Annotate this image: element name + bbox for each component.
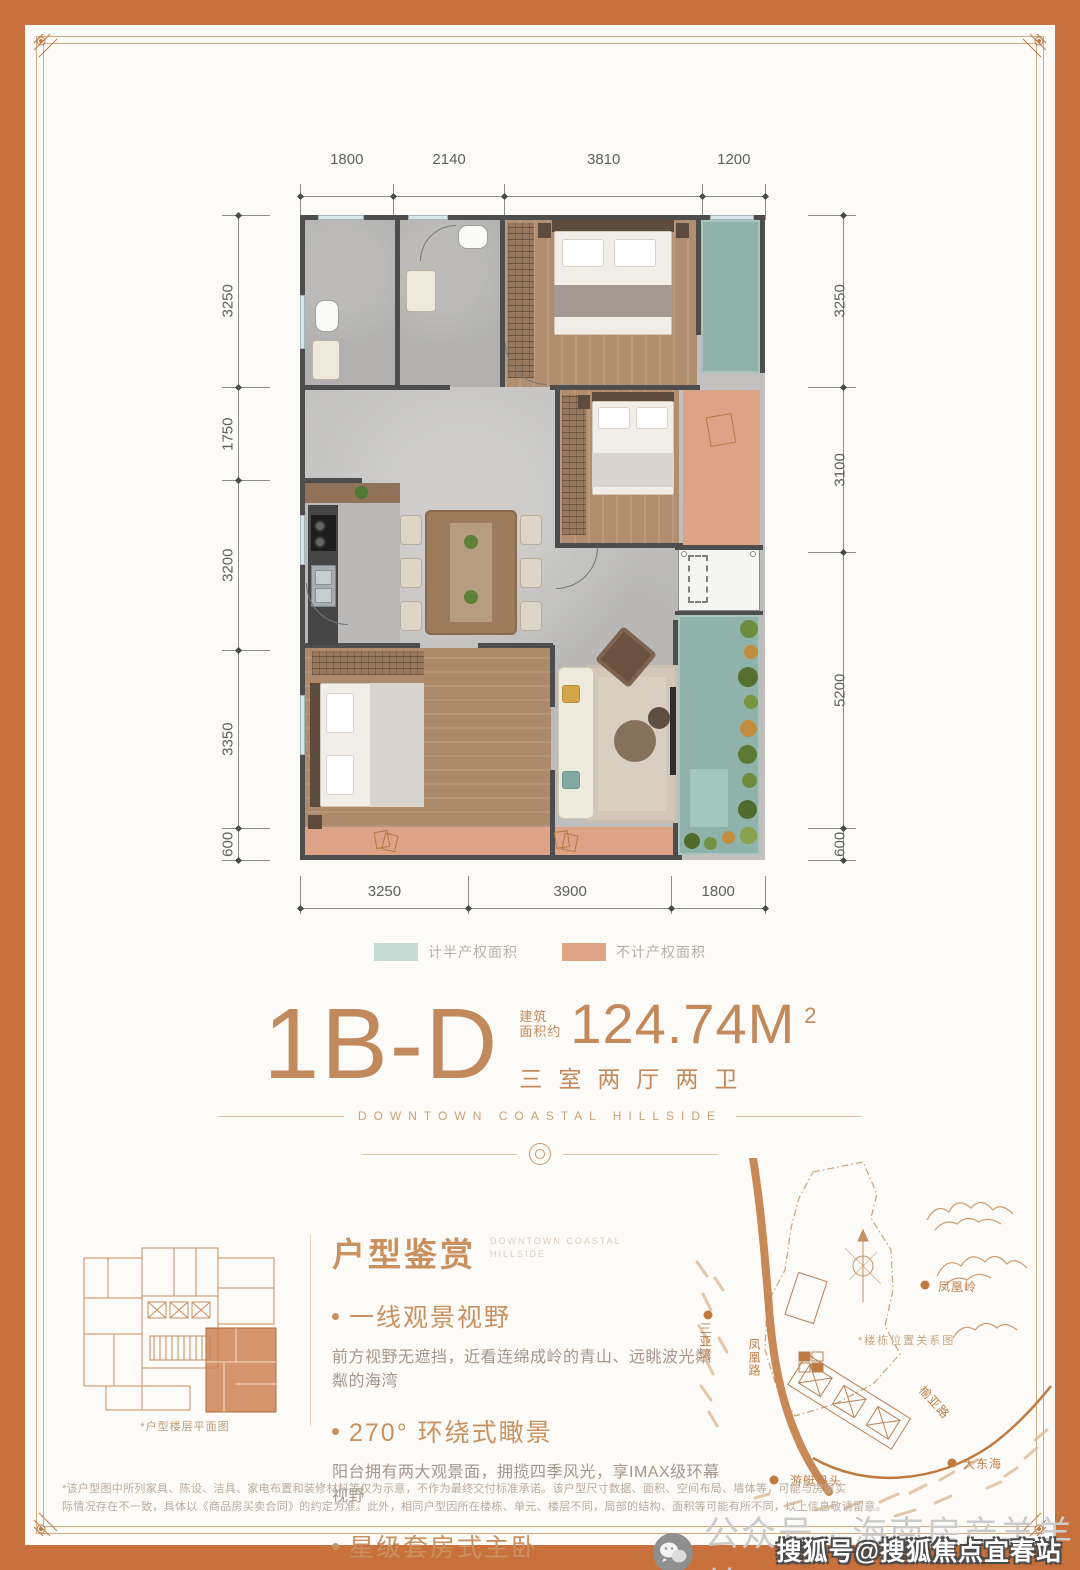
dimension-label: 1800 — [671, 880, 765, 902]
plant — [744, 695, 758, 709]
window — [300, 295, 305, 349]
legend-swatch-teal — [374, 943, 418, 961]
nightstand — [578, 395, 590, 409]
plant — [464, 535, 478, 549]
plant — [722, 831, 735, 844]
dim-line — [300, 196, 765, 197]
wall — [550, 770, 555, 858]
dimension-label: 1800 — [300, 148, 394, 170]
dimension-label: 3100 — [830, 388, 850, 553]
legend-label: 计半产权面积 — [428, 942, 518, 962]
plant — [744, 645, 758, 659]
wall — [550, 645, 555, 707]
feature-item: 一线观景视野 前方视野无遮挡，近看连绵成岭的青山、远眺波光粼粼的海湾 — [332, 1298, 724, 1391]
coffee-table — [614, 720, 656, 762]
wall — [478, 643, 553, 648]
sink — [406, 270, 436, 312]
kitchen-counter — [305, 483, 400, 503]
legend-item-half-property: 计半产权面积 — [374, 942, 518, 962]
dimension-label: 3250 — [300, 880, 469, 902]
nightstand — [538, 223, 551, 238]
screw — [750, 551, 756, 557]
chair — [400, 601, 422, 631]
dimension-label: 2140 — [394, 148, 505, 170]
dimension-label: 3250 — [218, 215, 238, 388]
pillow — [562, 239, 604, 267]
dimension-label: 3250 — [830, 215, 850, 388]
dim-dot — [465, 905, 472, 912]
pillow — [636, 407, 668, 429]
sketch-box — [706, 413, 737, 447]
map-label-dadonghai: 大东海 — [963, 1455, 1002, 1472]
pillow — [562, 685, 580, 703]
legend-label: 不计产权面积 — [616, 942, 706, 962]
plant — [738, 745, 757, 764]
wall — [696, 215, 701, 335]
blanket — [370, 683, 424, 807]
dimension-label: 1200 — [703, 148, 765, 170]
dimensions-bottom: 325039001800 — [300, 868, 765, 924]
dimension-label: 600 — [218, 828, 238, 860]
door-arc — [556, 547, 598, 589]
watermark: 搜狐号@搜狐焦点宜春站 — [777, 1532, 1062, 1568]
wall — [500, 215, 505, 387]
title-block: 1B-D 建筑 面积约 124.74M 2 三室两厅两卫 DOWNTOWN CO… — [0, 993, 1080, 1123]
map-label-fenghuangling: 凤凰岭 — [938, 1278, 977, 1295]
corner-ornament-icon — [30, 1502, 68, 1540]
dimension-label: 3200 — [218, 480, 238, 650]
plant — [704, 837, 717, 850]
dimension-label: 1750 — [218, 388, 238, 481]
pillow — [614, 239, 656, 267]
wardrobe — [312, 651, 424, 675]
toilet — [315, 300, 339, 332]
plant — [740, 827, 757, 844]
map-label-sanya-bay: 三亚湾 — [697, 1322, 714, 1361]
blanket — [554, 285, 672, 317]
dim-line — [300, 908, 765, 909]
plant — [464, 590, 478, 604]
pillow — [326, 693, 354, 733]
toilet — [458, 225, 488, 249]
features-heading-en: DOWNTOWN COASTAL HILLSIDE — [490, 1235, 622, 1261]
wall — [675, 611, 763, 615]
dim-line — [238, 215, 239, 860]
burner — [314, 536, 326, 548]
pillow — [562, 771, 580, 789]
bullet-icon — [332, 1428, 339, 1435]
window — [408, 215, 448, 220]
dim-dot — [501, 193, 508, 200]
wardrobe — [562, 395, 586, 535]
wall — [395, 215, 400, 387]
seal-ornament-icon — [529, 1143, 551, 1165]
master-balcony — [701, 220, 760, 373]
nightstand — [308, 815, 322, 829]
wall — [555, 390, 560, 548]
vertical-divider — [310, 1234, 311, 1426]
map-label-fenghuang-road: 凤凰路 — [746, 1338, 763, 1377]
dimensions-left: 3250175032003350600 — [196, 215, 276, 860]
plant — [742, 773, 757, 788]
chair — [400, 515, 422, 545]
side-table — [648, 707, 670, 729]
planter — [688, 767, 730, 829]
area-superscript: 2 — [804, 1003, 816, 1029]
chair — [520, 515, 542, 545]
wall — [300, 855, 682, 860]
burner — [314, 520, 326, 532]
corner-ornament-icon — [1012, 30, 1050, 68]
area-value: 124.74M — [570, 993, 795, 1055]
dimension-label: 3810 — [505, 148, 703, 170]
plant — [355, 486, 368, 499]
floor-plate-diagram — [78, 1236, 292, 1419]
plant — [740, 720, 757, 737]
wall — [300, 385, 450, 390]
floor-plan: A/C — [300, 215, 765, 860]
dimension-label: 3350 — [218, 650, 238, 828]
legend: 计半产权面积 不计产权面积 — [0, 942, 1080, 962]
wall — [675, 545, 763, 550]
window — [318, 215, 364, 220]
map-caption: *楼栋位置关系图 — [858, 1332, 955, 1348]
bullet-icon — [332, 1313, 339, 1320]
bullet-icon — [332, 1543, 339, 1550]
corner-ornament-icon — [30, 30, 68, 68]
legend-swatch-orange — [562, 943, 606, 961]
floor-plate-caption: *户型楼层平面图 — [78, 1418, 292, 1434]
features-heading: 户型鉴赏 — [332, 1228, 476, 1276]
chair — [520, 558, 542, 588]
dimensions-right: 325031005200600 — [798, 215, 878, 860]
legend-item-no-property: 不计产权面积 — [562, 942, 706, 962]
plant — [740, 620, 758, 638]
plant — [738, 800, 757, 819]
dimension-label: 3900 — [469, 880, 672, 902]
chair — [520, 601, 542, 631]
plant — [738, 667, 758, 687]
dimensions-top: 1800214038101200 — [300, 144, 765, 220]
area-prefix: 建筑 面积约 — [519, 1009, 561, 1039]
tv — [670, 687, 676, 775]
pillow — [598, 407, 630, 429]
nightstand — [676, 223, 689, 238]
pillow — [326, 755, 354, 795]
blanket — [592, 453, 674, 487]
poster: 1800214038101200 325039001800 3250175032… — [0, 0, 1080, 1570]
plant — [684, 833, 700, 849]
wechat-icon — [652, 1532, 694, 1570]
sink — [312, 340, 340, 380]
en-tagline: DOWNTOWN COASTAL HILLSIDE — [219, 1109, 861, 1123]
chair — [400, 558, 422, 588]
dim-dot — [390, 193, 397, 200]
window — [710, 215, 754, 220]
unit-code: 1B-D — [263, 993, 499, 1095]
room-configuration: 三室两厅两卫 — [519, 1060, 816, 1094]
screw — [681, 551, 687, 557]
dim-dot — [668, 905, 675, 912]
window — [300, 515, 305, 565]
dimension-label: 600 — [830, 828, 850, 860]
wall — [760, 215, 765, 373]
wall — [550, 385, 700, 390]
window — [300, 695, 305, 755]
dimension-label: 5200 — [830, 552, 850, 828]
uncounted-strip-bottom — [305, 827, 675, 855]
ac-box — [688, 555, 708, 603]
dim-dot — [699, 193, 706, 200]
